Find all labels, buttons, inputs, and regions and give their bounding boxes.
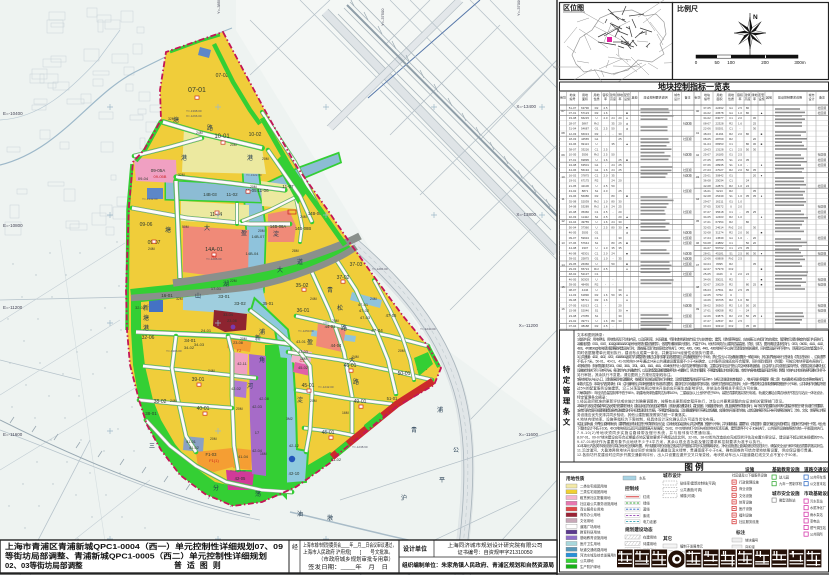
svg-text:S1: S1 (729, 194, 733, 198)
svg-text:U: U (730, 205, 732, 209)
svg-text:R2: R2 (729, 220, 733, 224)
svg-text:沪: 沪 (401, 494, 407, 502)
svg-text:22-06: 22-06 (703, 127, 711, 131)
svg-text:●: ● (761, 173, 763, 177)
svg-text:Rr2: Rr2 (594, 153, 599, 157)
svg-text:G1: G1 (729, 173, 733, 177)
svg-text:24: 24 (746, 184, 750, 188)
svg-text:Rr2: Rr2 (594, 267, 599, 271)
svg-text:48-02: 48-02 (569, 272, 577, 276)
svg-text:1.指标内容：用地界线、用地性质及下划线内容，以及容积率、水: 1.指标内容：用地界线、用地性质及下划线内容，以及容积率、水系廊道、特别控制线和… (577, 336, 826, 341)
svg-text:7.9-10(2)号地块须同步实施沿路绿带及慢行系统，并与相: 7.9-10(2)号地块须同步实施沿路绿带及慢行系统，并与相邻街坊贯通衔接。 (577, 430, 714, 435)
svg-text:理: 理 (563, 397, 571, 406)
svg-text:●: ● (761, 194, 763, 198)
svg-text:30: 30 (753, 225, 757, 229)
svg-text:务设施应优先安排并同步验收，其他公建配套按照街坊统一平衡落实: 务设施应优先安排并同步验收，其他公建配套按照街坊统一平衡落实。 (577, 412, 689, 417)
svg-text:17-01: 17-01 (211, 286, 222, 291)
svg-text:Y=-37000: Y=-37000 (516, 0, 521, 16)
svg-text:32M: 32M (178, 173, 185, 177)
svg-text:社区级: 社区级 (818, 302, 827, 307)
svg-text:09-07: 09-07 (569, 236, 577, 240)
svg-text:X=-11200: X=-11200 (519, 323, 539, 328)
svg-text:24: 24 (611, 220, 615, 224)
svg-text:07-01: 07-01 (188, 87, 206, 94)
svg-text:生产防护绿地: 生产防护绿地 (580, 564, 601, 569)
svg-text:24M: 24M (148, 247, 155, 251)
svg-text:-: - (747, 277, 748, 281)
svg-text:▲: ▲ (626, 215, 629, 219)
svg-text:1.经区政府批准的更新评估或实施计划确需调整的，按照有关更新: 1.经区政府批准的更新评估或实施计划确需调整的，按照有关更新规定程序执行，涉及公… (577, 399, 786, 404)
svg-text:25: 25 (618, 137, 622, 141)
svg-text:44-06: 44-06 (569, 168, 577, 172)
svg-text:1.6: 1.6 (603, 158, 607, 162)
svg-text:35: 35 (746, 324, 750, 328)
svg-text:公交首末站: 公交首末站 (810, 481, 827, 486)
svg-text:20M: 20M (250, 185, 257, 189)
svg-text:用地性质: 用地性质 (566, 475, 585, 482)
svg-text:10-05: 10-05 (569, 153, 577, 157)
svg-text:2.0: 2.0 (738, 272, 742, 276)
svg-text:Rr2: Rr2 (594, 121, 599, 125)
svg-text:44-04: 44-04 (331, 343, 342, 348)
svg-text:水质净化厂: 水质净化厂 (810, 505, 826, 510)
svg-text:-: - (605, 163, 606, 167)
svg-text:N: N (753, 14, 758, 21)
svg-text:53289: 53289 (581, 205, 589, 209)
svg-text:2.5: 2.5 (603, 127, 607, 131)
svg-text:淀: 淀 (273, 230, 279, 238)
svg-text:31-04: 31-04 (569, 127, 577, 131)
svg-text:2.0: 2.0 (738, 132, 742, 136)
svg-text:5867: 5867 (582, 121, 589, 125)
svg-text:X=-13400: X=-13400 (516, 104, 536, 109)
svg-text:R2: R2 (729, 283, 733, 287)
svg-text:社区级: 社区级 (683, 120, 692, 125)
svg-text:大: 大 (277, 266, 283, 274)
svg-text:34-08: 34-08 (569, 163, 577, 167)
svg-text:地块控制指标一览表: 地块控制指标一览表 (658, 82, 731, 92)
svg-text:2.5: 2.5 (738, 288, 742, 292)
svg-text:C1: C1 (595, 251, 599, 255)
svg-text:42-11: 42-11 (237, 362, 246, 366)
svg-text:24: 24 (611, 116, 615, 120)
svg-text:三: 三 (149, 443, 155, 450)
svg-text:Y=-1250.00: Y=-1250.00 (298, 329, 314, 333)
svg-text:F2: F2 (237, 348, 242, 353)
svg-text:39-01: 39-01 (192, 377, 205, 383)
svg-text:07: 07 (561, 109, 565, 113)
svg-text:Rr2: Rr2 (729, 225, 734, 229)
svg-text:紫线: 紫线 (643, 513, 650, 518)
svg-text:52137: 52137 (581, 272, 589, 276)
svg-text:社区级: 社区级 (683, 292, 692, 297)
svg-text:R2: R2 (595, 293, 599, 297)
svg-text:16-01: 16-01 (161, 293, 173, 298)
svg-text:22492: 22492 (715, 106, 723, 110)
svg-text:10-02: 10-02 (249, 132, 262, 138)
svg-text:S1: S1 (595, 215, 599, 219)
svg-text:R2: R2 (729, 184, 733, 188)
svg-text:2.5: 2.5 (603, 153, 607, 157)
svg-text:33-08: 33-08 (569, 116, 577, 120)
svg-text:30: 30 (618, 199, 622, 203)
svg-text:2.0: 2.0 (603, 173, 607, 177)
svg-text:■: ■ (626, 262, 628, 266)
svg-text:30: 30 (618, 132, 622, 136)
svg-text:社区级: 社区级 (818, 157, 827, 162)
svg-text:2.5: 2.5 (603, 106, 607, 110)
svg-text:1.0: 1.0 (603, 257, 607, 261)
svg-text:浦: 浦 (259, 328, 265, 336)
svg-text:20M: 20M (210, 437, 217, 441)
svg-text:66013: 66013 (581, 132, 589, 136)
svg-text:-: - (747, 163, 748, 167)
svg-text:30: 30 (753, 147, 757, 151)
svg-text:42-05: 42-05 (235, 476, 246, 481)
svg-text:R2: R2 (595, 283, 599, 287)
svg-text:49: 49 (696, 307, 700, 311)
svg-text:E=-11600: E=-11600 (3, 432, 23, 437)
svg-text:22537: 22537 (715, 319, 723, 323)
svg-text:50: 50 (746, 147, 750, 151)
svg-text:39-05: 39-05 (569, 283, 577, 287)
svg-text:备注: 备注 (684, 95, 690, 100)
svg-text:4446: 4446 (582, 288, 589, 292)
svg-text:35: 35 (746, 210, 750, 214)
svg-text:37-05: 37-05 (703, 205, 711, 209)
svg-text:58711: 58711 (581, 298, 589, 302)
svg-text:28935: 28935 (715, 163, 723, 167)
svg-text:24: 24 (746, 179, 750, 183)
svg-text:35: 35 (611, 142, 615, 146)
svg-text:率: 率 (618, 96, 621, 101)
svg-text:G1: G1 (729, 236, 733, 240)
svg-text:社区级: 社区级 (818, 105, 827, 110)
svg-text:-: - (605, 132, 606, 136)
svg-text:50: 50 (611, 293, 615, 297)
svg-text:淀: 淀 (297, 396, 303, 404)
svg-text:■: ■ (761, 142, 763, 146)
svg-text:U: U (595, 184, 597, 188)
svg-text:E=-10400: E=-10400 (3, 111, 23, 116)
svg-text:R2: R2 (729, 298, 733, 302)
svg-text:面积: 面积 (582, 96, 588, 101)
svg-text:租赁房社区配套用地: 租赁房社区配套用地 (580, 495, 611, 500)
svg-text:社区级: 社区级 (818, 250, 827, 255)
svg-text:50201: 50201 (715, 127, 723, 131)
svg-text:商业服务业用地: 商业服务业用地 (580, 507, 604, 512)
svg-text:60808: 60808 (715, 257, 723, 261)
svg-text:20: 20 (618, 210, 622, 214)
svg-text:■: ■ (761, 283, 763, 287)
svg-text:35: 35 (618, 257, 622, 261)
svg-text:（市政府城乡规划审批专用章）: （市政府城乡规划审批专用章） (318, 555, 394, 563)
svg-text:36705: 36705 (715, 298, 723, 302)
svg-text:50: 50 (611, 153, 615, 157)
svg-text:Rr2: Rr2 (594, 199, 599, 203)
svg-text:教育科研用地: 教育科研用地 (580, 530, 601, 535)
svg-text:68353: 68353 (715, 142, 723, 146)
svg-text:幼儿园: 幼儿园 (779, 475, 790, 480)
svg-text:Rr2: Rr2 (729, 267, 734, 271)
svg-text:44-08: 44-08 (569, 246, 577, 250)
svg-text:35: 35 (753, 189, 757, 193)
svg-text:11: 11 (561, 197, 564, 201)
svg-text:34-03: 34-03 (194, 342, 205, 347)
svg-text:G1: G1 (595, 231, 599, 235)
svg-text:25: 25 (753, 210, 757, 214)
svg-text:32-07: 32-07 (703, 283, 711, 287)
svg-text:33-02: 33-02 (234, 301, 246, 306)
svg-text:-: - (613, 210, 614, 214)
svg-text:24: 24 (611, 179, 615, 183)
svg-text:28769: 28769 (715, 137, 723, 141)
svg-text:23-02: 23-02 (569, 319, 577, 323)
svg-text:50: 50 (714, 60, 720, 65)
svg-text:12403: 12403 (715, 215, 723, 219)
svg-text:24M: 24M (170, 399, 177, 403)
svg-text:30313: 30313 (715, 324, 723, 328)
svg-text:浦: 浦 (437, 406, 443, 414)
svg-text:50-01: 50-01 (398, 371, 411, 377)
svg-text:30: 30 (618, 220, 622, 224)
svg-text:-: - (605, 309, 606, 313)
svg-text:50303: 50303 (581, 277, 589, 281)
svg-text:09-08: 09-08 (569, 298, 577, 302)
svg-text:公共通道(可调): 公共通道(可调) (680, 487, 702, 492)
svg-text:高度: 高度 (610, 96, 616, 101)
svg-text:X=-11600: X=-11600 (519, 432, 539, 437)
svg-text:25: 25 (618, 189, 622, 193)
svg-text:-: - (613, 324, 614, 328)
svg-text:控制线: 控制线 (625, 485, 639, 492)
svg-text:社区级: 社区级 (683, 261, 692, 266)
svg-text:蓝线: 蓝线 (643, 507, 650, 512)
svg-text:社区级: 社区级 (818, 110, 827, 115)
svg-text:31-04: 31-04 (703, 142, 711, 146)
svg-text:R2: R2 (595, 298, 599, 302)
svg-text:G1: G1 (595, 257, 599, 261)
svg-text:45181: 45181 (715, 251, 723, 255)
svg-text:39-02: 39-02 (569, 257, 577, 261)
svg-text:08-07: 08-07 (703, 121, 711, 125)
svg-text:R2: R2 (729, 277, 733, 281)
svg-text:C1: C1 (729, 210, 733, 214)
svg-text:社区级: 社区级 (818, 235, 827, 240)
svg-text:35: 35 (746, 288, 750, 292)
svg-text:G1: G1 (729, 106, 733, 110)
svg-text:港: 港 (143, 324, 149, 332)
svg-text:松: 松 (337, 304, 343, 312)
svg-text:33876: 33876 (715, 314, 723, 318)
svg-text:比例尺: 比例尺 (677, 4, 698, 13)
svg-text:20-08: 20-08 (569, 210, 577, 214)
svg-text:4.特殊说明：朱家角镇街坊07-01、09-02、38-01: 4.特殊说明：朱家角镇街坊07-01、09-02、38-01、37-01、42-… (577, 363, 826, 368)
svg-text:07-04: 07-04 (569, 324, 577, 328)
svg-text:12-03: 12-03 (569, 132, 577, 136)
svg-text:33-04: 33-04 (223, 313, 233, 317)
svg-text:14B-08B: 14B-08B (295, 226, 312, 231)
svg-text:2.5: 2.5 (738, 246, 742, 250)
svg-text:Y=-1322.40: Y=-1322.40 (246, 173, 262, 177)
svg-text:盈: 盈 (241, 230, 247, 237)
svg-text:24: 24 (746, 309, 750, 313)
svg-text:塘: 塘 (165, 226, 171, 234)
svg-text:20M: 20M (332, 319, 339, 323)
svg-text:社区级: 社区级 (818, 214, 827, 219)
svg-text:45: 45 (696, 219, 700, 223)
svg-text:1.6: 1.6 (603, 111, 607, 115)
svg-text:29-07: 29-07 (703, 199, 711, 203)
svg-text:设施: 设施 (758, 96, 764, 101)
svg-text:2.5: 2.5 (603, 147, 607, 151)
svg-text:47-04: 47-04 (371, 328, 383, 333)
svg-text:社区级: 社区级 (683, 240, 692, 245)
svg-text:R2: R2 (211, 254, 217, 259)
svg-text:U: U (595, 319, 597, 323)
svg-text:12: 12 (561, 219, 565, 223)
svg-text:G1: G1 (595, 163, 599, 167)
svg-text:分: 分 (213, 484, 219, 492)
svg-text:R2: R2 (729, 303, 733, 307)
svg-text:1.0: 1.0 (603, 199, 607, 203)
svg-text:设计单位: 设计单位 (403, 545, 427, 553)
svg-text:12-06: 12-06 (703, 314, 711, 318)
svg-text:24M: 24M (370, 297, 377, 301)
svg-text:11-07: 11-07 (282, 184, 294, 189)
svg-text:38-01: 38-01 (145, 411, 157, 416)
svg-text:文本和图则摘录：: 文本和图则摘录： (577, 332, 606, 337)
svg-text:变电站: 变电站 (810, 518, 820, 523)
svg-text:青: 青 (411, 426, 417, 434)
svg-text:25034: 25034 (715, 179, 723, 183)
svg-text:塘: 塘 (173, 116, 179, 124)
svg-text:R2: R2 (729, 309, 733, 313)
svg-text:35021: 35021 (715, 277, 723, 281)
svg-text:47: 47 (696, 263, 700, 267)
svg-text:39771: 39771 (581, 319, 589, 323)
svg-text:20M: 20M (258, 229, 265, 233)
svg-text:50: 50 (746, 168, 750, 172)
svg-text:16-02: 16-02 (569, 173, 577, 177)
svg-text:45-02: 45-02 (298, 366, 308, 370)
svg-text:33226: 33226 (581, 147, 589, 151)
svg-text:9.47-01地块作为重要形象节点地块不少于4平方米，其余以: 9.47-01地块作为重要形象节点地块不少于4平方米，其余以现业态功能及管控要求… (577, 439, 764, 444)
svg-text:20578: 20578 (715, 111, 723, 115)
svg-text:11294: 11294 (716, 132, 724, 136)
svg-text:■: ■ (626, 158, 628, 162)
svg-text:100: 100 (727, 60, 735, 65)
svg-text:30: 30 (618, 319, 622, 323)
svg-text:47-01: 47-01 (358, 302, 369, 307)
svg-text:体育设施: 体育设施 (739, 499, 753, 504)
svg-text:1.0: 1.0 (603, 246, 607, 250)
svg-text:社区级: 社区级 (683, 167, 692, 172)
svg-text:荡: 荡 (255, 490, 261, 498)
svg-text:63501: 63501 (581, 163, 589, 167)
svg-text:27027: 27027 (715, 168, 723, 172)
svg-text:2.5: 2.5 (738, 319, 742, 323)
svg-text:U: U (730, 272, 732, 276)
svg-text:20M: 20M (236, 407, 243, 411)
svg-text:5505: 5505 (582, 231, 589, 235)
svg-text:37-07: 37-07 (703, 210, 711, 214)
svg-text:32-06: 32-06 (142, 335, 155, 341)
svg-text:水系: 水系 (639, 476, 646, 481)
svg-text:50: 50 (611, 184, 615, 188)
svg-text:20M: 20M (230, 143, 237, 147)
svg-text:32-03: 32-03 (569, 215, 577, 219)
svg-text:2.0: 2.0 (738, 168, 742, 172)
svg-text:42-08: 42-08 (703, 184, 711, 188)
svg-text:上海市青浦区青浦新城QPC1-0004（西一）单元控制性详细: 上海市青浦区青浦新城QPC1-0004（西一）单元控制性详细规划07、09 (5, 541, 283, 551)
svg-text:8871: 8871 (582, 189, 589, 193)
svg-text:G1: G1 (595, 127, 599, 131)
svg-text:38188: 38188 (581, 324, 589, 328)
svg-text:80: 80 (611, 199, 615, 203)
svg-text:山: 山 (195, 292, 201, 300)
svg-text:46-08: 46-08 (569, 251, 577, 255)
svg-text:20: 20 (753, 241, 757, 245)
svg-text:61013: 61013 (581, 303, 589, 307)
svg-text:Rr2: Rr2 (594, 205, 599, 209)
svg-text:绿线: 绿线 (643, 500, 650, 505)
svg-text:C1: C1 (729, 241, 733, 245)
svg-text:10: 10 (561, 175, 565, 179)
svg-text:50-08: 50-08 (703, 241, 711, 245)
svg-text:20: 20 (618, 215, 622, 219)
svg-text:08-03: 08-03 (703, 288, 711, 292)
svg-text:U: U (595, 277, 597, 281)
svg-text:25439: 25439 (715, 194, 723, 198)
svg-text:设施依街坊执行不少于200平方米。各沿街坊内公共通道节点，以: 设施依街坊执行不少于200平方米。各沿街坊内公共通道节点，以及沿街配套设施新建要… (577, 368, 826, 373)
svg-text:25: 25 (618, 163, 622, 167)
svg-text:性质: 性质 (593, 96, 599, 101)
svg-text:20: 20 (618, 179, 622, 183)
svg-text:路: 路 (207, 124, 213, 132)
svg-text:35: 35 (618, 246, 622, 250)
svg-text:微型消防站: 微型消防站 (779, 498, 796, 503)
svg-text:25-01: 25-01 (703, 173, 711, 177)
svg-text:社区级: 社区级 (683, 235, 692, 240)
svg-text:区位图: 区位图 (563, 3, 584, 12)
svg-text:68058: 68058 (715, 309, 723, 313)
svg-text:S1: S1 (729, 251, 733, 255)
svg-text:09-05A: 09-05A (151, 168, 166, 173)
svg-text:25: 25 (753, 283, 757, 287)
svg-text:80: 80 (746, 132, 750, 136)
svg-text:46: 46 (696, 241, 700, 245)
svg-text:U: U (595, 262, 597, 266)
svg-text:U: U (595, 116, 597, 120)
svg-text:路: 路 (353, 378, 359, 386)
svg-text:组织编制单位：朱家角镇人民政府、青浦区规划和自然资源局: 组织编制单位：朱家角镇人民政府、青浦区规划和自然资源局 (402, 561, 555, 569)
svg-text:社区级及以下级服务设施: 社区级及以下级服务设施 (732, 473, 768, 478)
svg-text:1.0: 1.0 (738, 111, 742, 115)
svg-text:油: 油 (297, 510, 303, 518)
svg-text:34-06: 34-06 (569, 142, 577, 146)
svg-text:塘: 塘 (143, 314, 149, 322)
svg-text:社区级: 社区级 (683, 230, 692, 235)
svg-text:80: 80 (746, 111, 750, 115)
svg-text:69113: 69113 (581, 142, 589, 146)
svg-text:九年一贯制学校: 九年一贯制学校 (779, 481, 803, 486)
svg-text:32672: 32672 (715, 205, 723, 209)
svg-text:S1: S1 (595, 241, 599, 245)
svg-text:24M: 24M (208, 369, 215, 373)
svg-text:07-06: 07-06 (569, 241, 577, 245)
svg-text:32M: 32M (176, 297, 183, 301)
